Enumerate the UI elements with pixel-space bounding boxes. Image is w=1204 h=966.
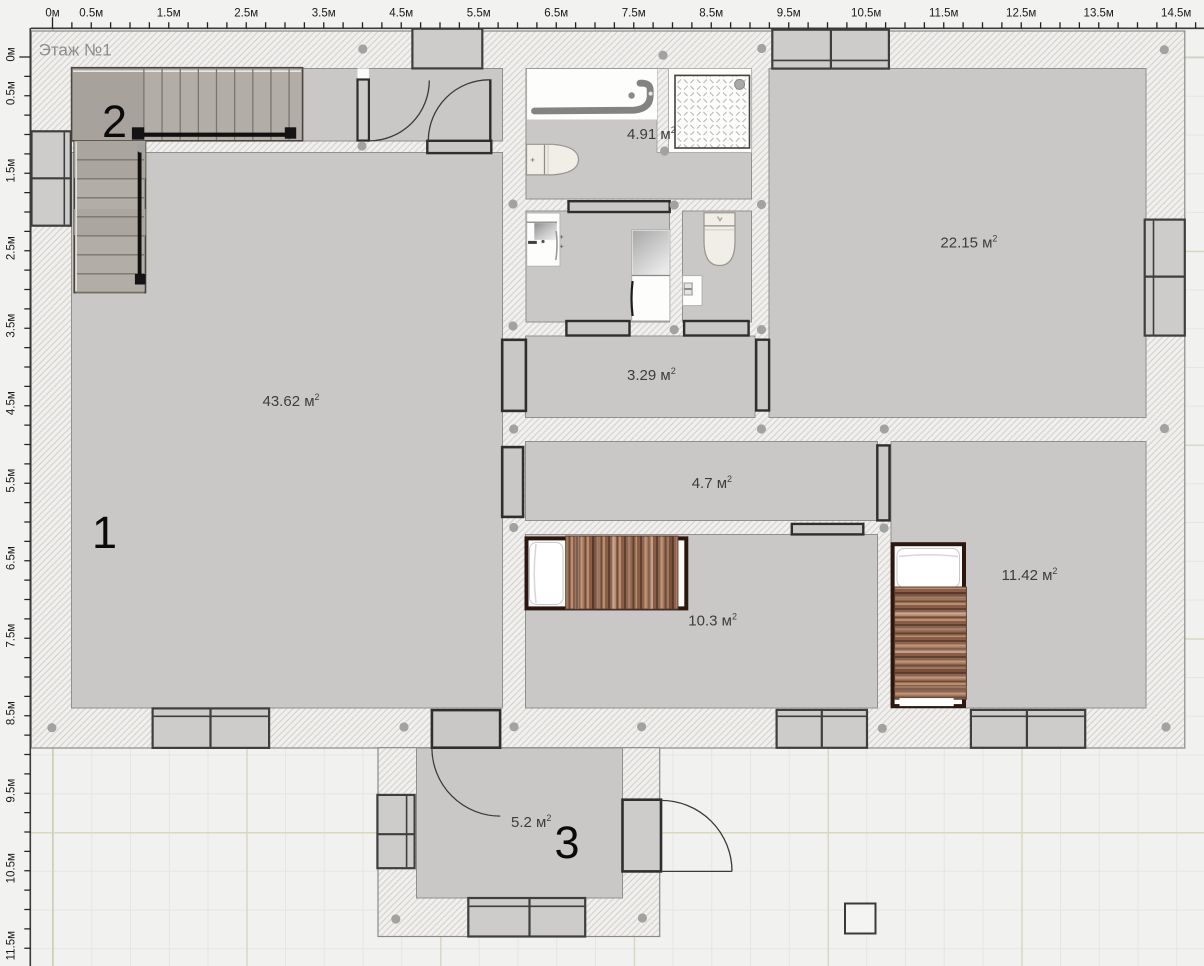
svg-text:8.5м: 8.5м [6, 701, 18, 725]
svg-text:7.5м: 7.5м [6, 624, 18, 648]
svg-text:10.5м: 10.5м [6, 853, 18, 883]
svg-text:1.5м: 1.5м [157, 8, 181, 20]
svg-text:5.5м: 5.5м [6, 469, 18, 493]
svg-text:1: 1 [92, 507, 117, 558]
svg-text:43.62 м2: 43.62 м2 [263, 392, 320, 410]
svg-text:6.5м: 6.5м [544, 8, 568, 20]
svg-text:6.5м: 6.5м [6, 546, 18, 570]
svg-text:3: 3 [554, 817, 579, 868]
svg-text:7.5м: 7.5м [622, 8, 646, 20]
svg-text:13.5м: 13.5м [1084, 8, 1114, 20]
svg-text:14.5м: 14.5м [1161, 8, 1191, 20]
svg-text:11.5м: 11.5м [929, 8, 959, 20]
svg-text:9.5м: 9.5м [777, 8, 801, 20]
svg-text:11.5м: 11.5м [6, 931, 18, 961]
svg-text:10.5м: 10.5м [851, 8, 881, 20]
svg-text:0.5м: 0.5м [79, 8, 103, 20]
svg-text:4.5м: 4.5м [6, 391, 18, 415]
svg-text:10.3 м2: 10.3 м2 [688, 612, 737, 630]
svg-text:11.42 м2: 11.42 м2 [1002, 566, 1058, 584]
svg-text:5.5м: 5.5м [467, 8, 491, 20]
svg-text:22.15 м2: 22.15 м2 [940, 234, 997, 252]
svg-text:3.5м: 3.5м [312, 8, 336, 20]
svg-text:8.5м: 8.5м [699, 8, 723, 20]
svg-text:1.5м: 1.5м [6, 159, 18, 183]
svg-text:0м: 0м [6, 47, 18, 61]
svg-text:4.5м: 4.5м [389, 8, 413, 20]
svg-text:2.5м: 2.5м [6, 236, 18, 260]
svg-text:2: 2 [102, 96, 127, 147]
svg-text:3.29 м2: 3.29 м2 [627, 366, 676, 384]
svg-text:9.5м: 9.5м [6, 779, 18, 803]
svg-text:2.5м: 2.5м [234, 8, 258, 20]
svg-text:4.91 м2: 4.91 м2 [627, 125, 676, 143]
svg-text:0м: 0м [45, 8, 59, 20]
svg-text:Этаж №1: Этаж №1 [39, 41, 112, 60]
svg-text:3.5м: 3.5м [6, 314, 18, 338]
svg-text:5.2 м2: 5.2 м2 [511, 813, 551, 831]
svg-text:12.5м: 12.5м [1006, 8, 1036, 20]
svg-text:4.7 м2: 4.7 м2 [692, 474, 732, 492]
svg-text:0.5м: 0.5м [6, 81, 18, 105]
